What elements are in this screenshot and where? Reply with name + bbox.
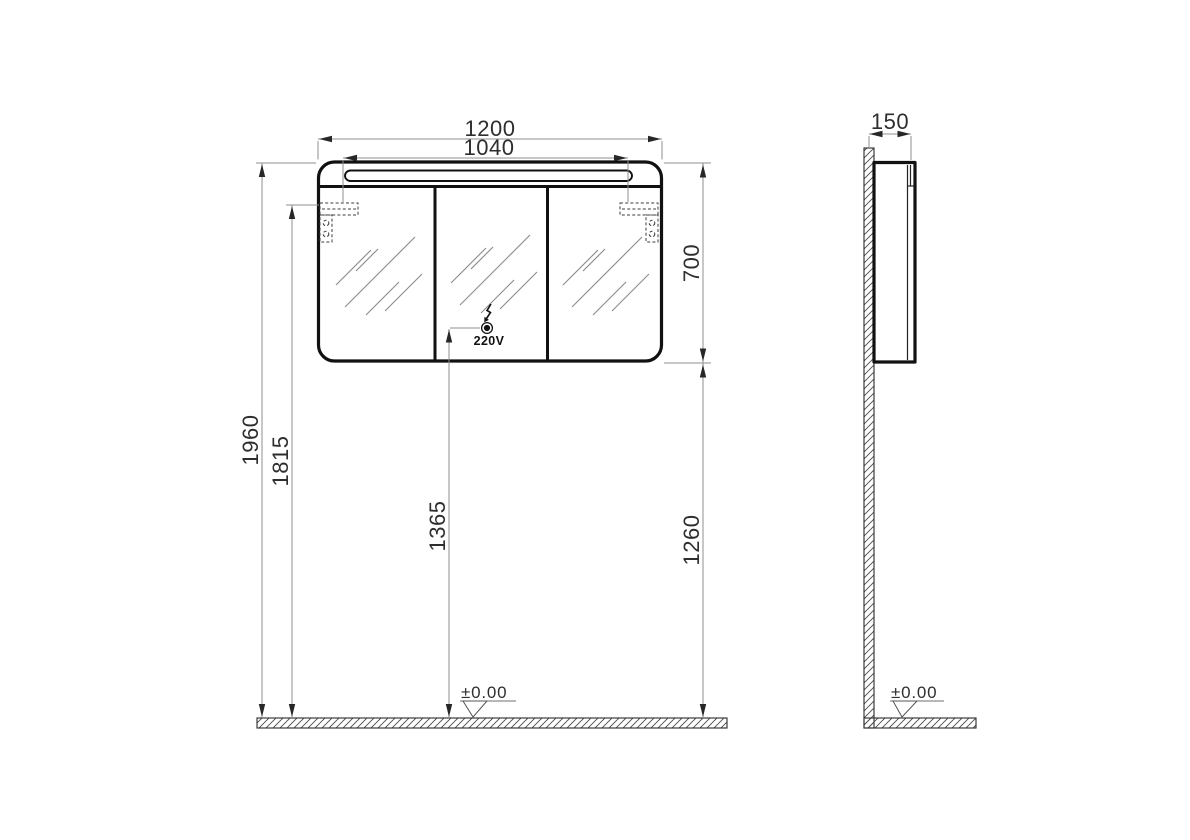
floor-level-marker-front: ±0.00 xyxy=(460,683,516,717)
dim-label-1260: 1260 xyxy=(679,515,704,566)
dimension-bracket-height: 1815 xyxy=(268,205,319,717)
dimension-cabinet-height: 700 xyxy=(664,163,711,363)
floor-section-front xyxy=(257,718,727,728)
dim-label-150: 150 xyxy=(871,109,909,134)
dim-label-1365: 1365 xyxy=(425,501,450,552)
technical-drawing-canvas: 220V 1200 1040 1960 xyxy=(0,0,1190,840)
floor-section-side xyxy=(864,718,976,728)
dim-label-1960: 1960 xyxy=(238,415,263,466)
led-light-strip xyxy=(345,171,632,182)
mirror-cabinet-drawing: 220V 1200 1040 1960 xyxy=(0,0,1190,840)
floor-level-marker-side: ±0.00 xyxy=(890,683,944,717)
level-triangle-icon xyxy=(463,701,487,717)
socket-voltage-label: 220V xyxy=(474,334,505,348)
dim-label-1040: 1040 xyxy=(464,135,515,160)
side-view: 150 ±0.00 xyxy=(864,109,976,728)
outlet-dot-center xyxy=(484,325,490,331)
level-triangle-icon xyxy=(893,701,917,717)
dim-label-700: 700 xyxy=(679,244,704,282)
cabinet-side-outline xyxy=(874,163,915,363)
front-view: 220V 1200 1040 1960 xyxy=(238,116,727,728)
floor-level-label-front: ±0.00 xyxy=(461,683,507,702)
floor-level-label-side: ±0.00 xyxy=(891,683,937,702)
dimension-depth: 150 xyxy=(869,109,911,160)
dimension-socket-height: 1365 xyxy=(425,329,452,717)
dim-label-1815: 1815 xyxy=(268,436,293,487)
dimension-cabinet-bottom-height: 1260 xyxy=(679,364,706,718)
